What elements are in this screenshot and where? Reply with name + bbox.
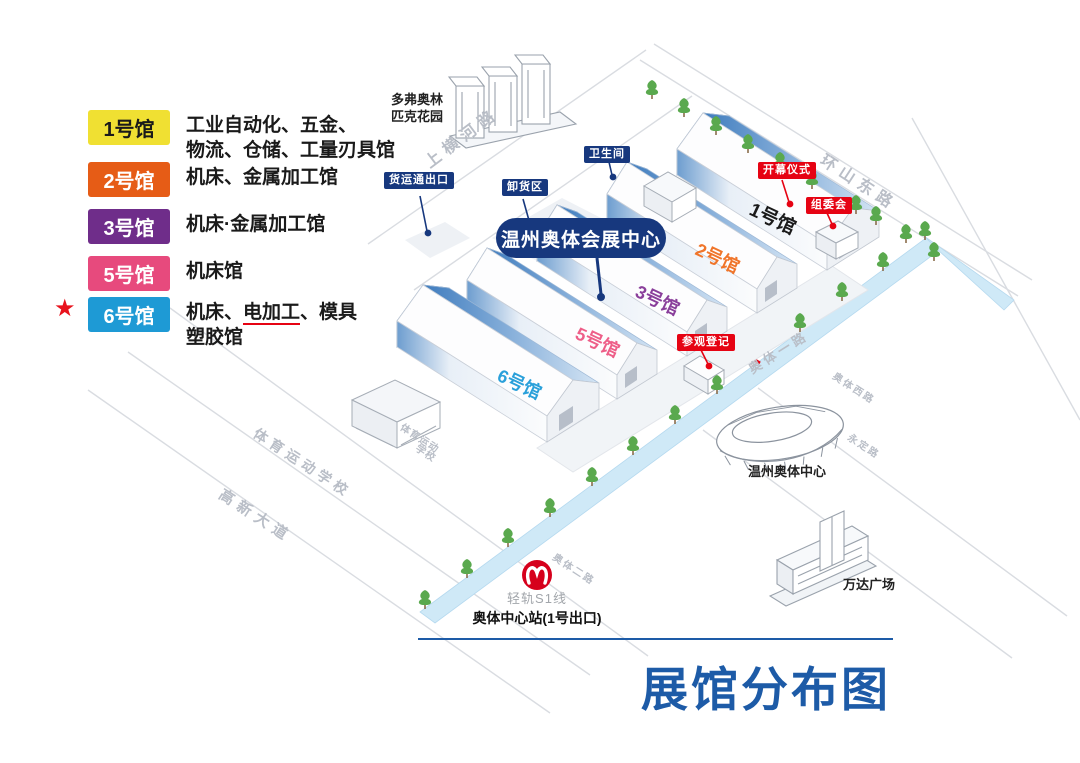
legend-row-hall2: 2号馆 机床、金属加工馆	[88, 162, 338, 197]
hall6-badge: 6号馆	[88, 297, 170, 332]
metro-stop-name: 奥体中心站(1号出口)	[472, 608, 601, 628]
unloading-area-tag: 卸货区	[502, 179, 548, 196]
area-label-sports-school: 体育运动学校	[251, 425, 355, 501]
road-label-aotixi: 奥体西路	[830, 370, 877, 407]
title-divider	[418, 638, 893, 640]
hall3-description: 机床·金属加工馆	[186, 209, 325, 237]
star-icon: ★	[54, 297, 76, 321]
freight-apron	[405, 222, 470, 258]
hall2-description: 机床、金属加工馆	[186, 162, 338, 190]
hall6-desc-mid: 、模具	[300, 302, 357, 323]
metro-station-label: 轻轨S1线 奥体中心站(1号出口)	[472, 588, 601, 628]
venue-name-pill: 温州奥体会展中心	[496, 218, 666, 258]
hall1-desc-line2: 物流、仓储、工量刃具馆	[186, 140, 395, 161]
hall6-desc-emphasis: 电加工	[243, 302, 300, 325]
exhibition-map-page: 上横河路 环山东路 奥体一路 体育运动学校 高新大道 奥体二路 奥体西路 永定路…	[0, 0, 1080, 763]
hall1-desc-line1: 工业自动化、五金、	[186, 115, 357, 136]
legend-row-hall5: 5号馆 机床馆	[88, 256, 243, 291]
hall6-desc-line2: 塑胶馆	[186, 327, 243, 348]
hall5-badge: 5号馆	[88, 256, 170, 291]
hall1-description: 工业自动化、五金、 物流、仓储、工量刃具馆	[186, 110, 395, 163]
freight-exit-tag: 货运通出口	[384, 172, 454, 189]
hall5-description: 机床馆	[186, 256, 243, 284]
hall6-desc-pre: 机床、	[186, 302, 243, 323]
aoti-center-label: 温州奥体中心	[748, 464, 826, 481]
hall2-badge: 2号馆	[88, 162, 170, 197]
metro-line-name: 轻轨S1线	[472, 588, 601, 607]
dove-garden-label: 多弗奥林 匹克花园	[391, 92, 443, 126]
registration-tag: 参观登记	[677, 334, 735, 351]
restroom-tag: 卫生间	[584, 146, 630, 163]
legend-row-hall1: 1号馆 工业自动化、五金、 物流、仓储、工量刃具馆	[88, 110, 395, 163]
hall1-badge: 1号馆	[88, 110, 170, 145]
hall6-description: 机床、电加工、模具 塑胶馆	[186, 297, 357, 350]
dove-garden-line1: 多弗奥林	[391, 92, 443, 107]
hall3-badge: 3号馆	[88, 209, 170, 244]
legend-row-hall6: 6号馆 机床、电加工、模具 塑胶馆	[88, 297, 357, 350]
committee-tag: 组委会	[806, 197, 852, 214]
road-label-gaoxin: 高新大道	[216, 485, 296, 546]
opening-ceremony-tag: 开幕仪式	[758, 162, 816, 179]
dove-garden-line2: 匹克花园	[391, 109, 443, 124]
legend-row-hall3: 3号馆 机床·金属加工馆	[88, 209, 325, 244]
road-label-aoti2: 奥体二路	[550, 551, 597, 588]
page-title: 展馆分布图	[641, 651, 891, 720]
wanda-plaza-label: 万达广场	[843, 577, 895, 594]
metro-logo-icon	[522, 560, 552, 590]
